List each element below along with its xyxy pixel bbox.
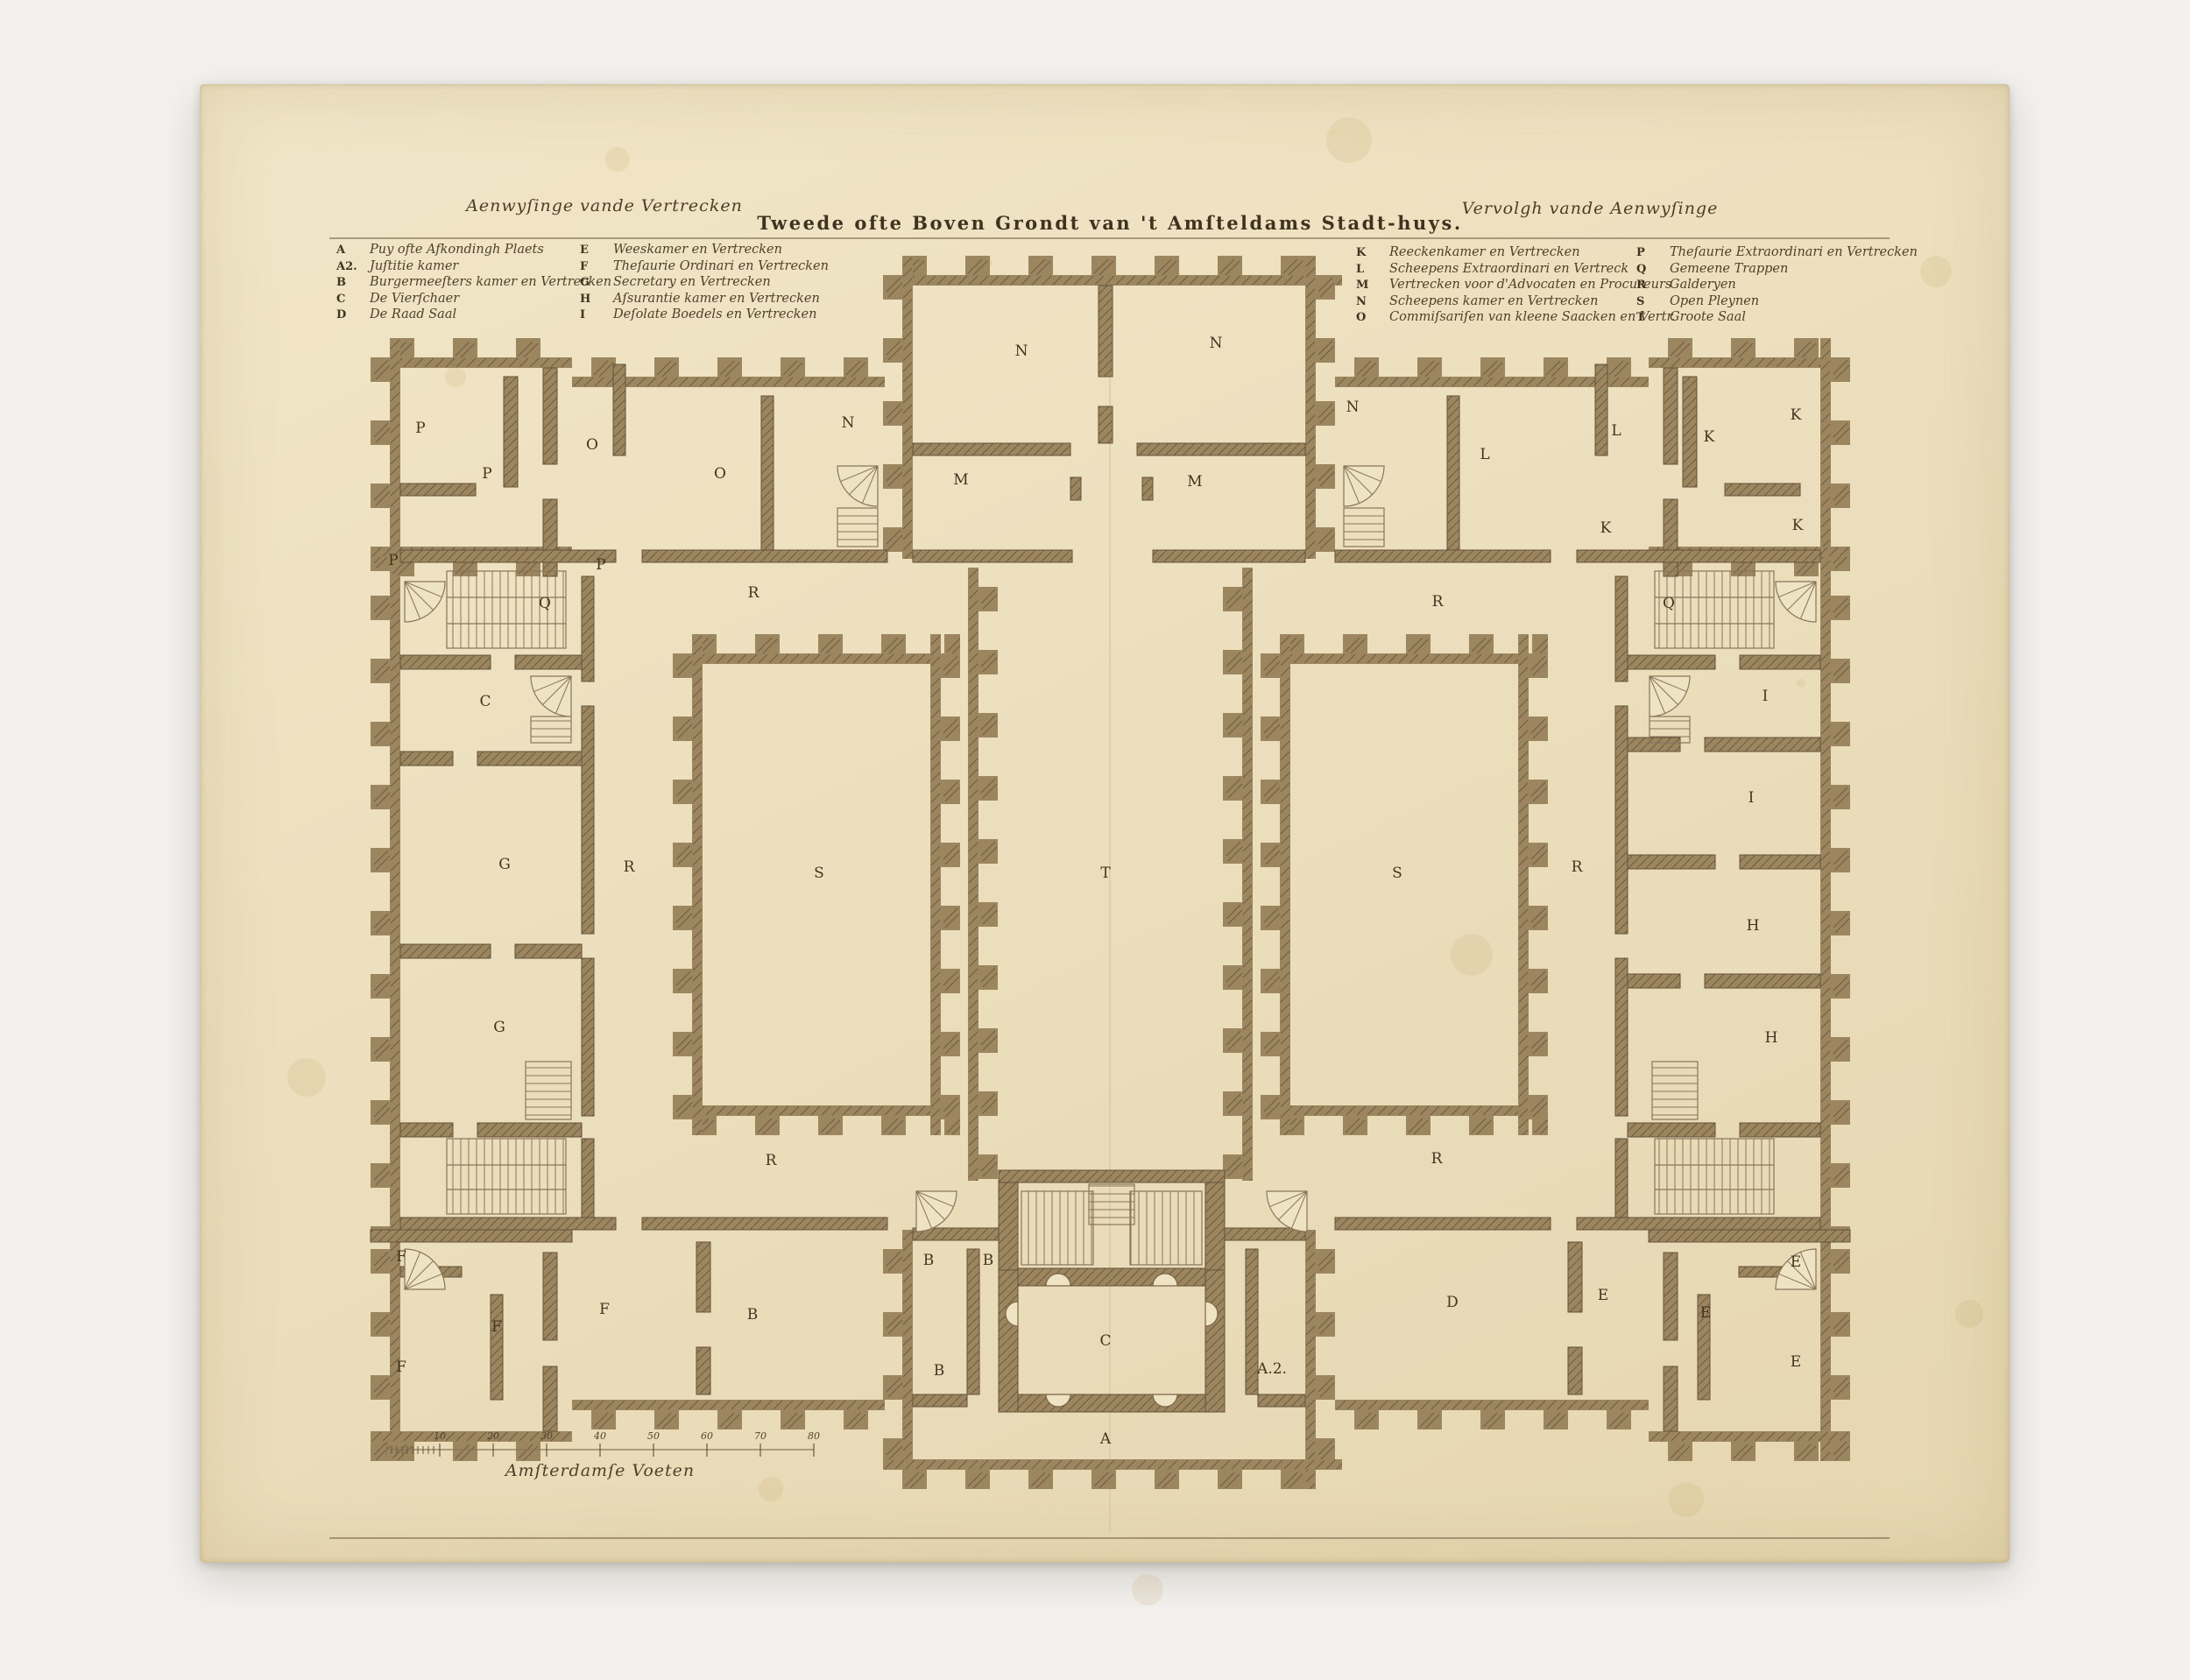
room-label-Q: Q — [539, 595, 551, 612]
legend-text: Secretary en Vertrecken — [613, 275, 771, 289]
room-label-R: R — [1431, 1150, 1444, 1168]
door-arches — [1006, 1274, 1218, 1407]
room-label-A: A — [1099, 1430, 1112, 1448]
room-label-K: K — [1704, 428, 1715, 446]
legend-key: P — [1636, 246, 1670, 259]
legend-text: Theſaurie Ordinari en Vertrecken — [613, 259, 829, 273]
room-label-O: O — [586, 436, 598, 454]
legend-key: E — [580, 244, 613, 257]
legend-row: HAſsurantie kamer en Vertrecken — [580, 292, 829, 308]
legend-text: Reeckenkamer en Vertrecken — [1389, 245, 1580, 259]
legend-key: F — [580, 260, 613, 273]
scale-tick-label: 80 — [808, 1430, 820, 1442]
engraving-page: 1020304050607080 PPPPOONNNNMMLLKKKKQQRRR… — [0, 0, 2190, 1680]
legend-row: BBurgermeeſters kamer en Vertrecken — [336, 275, 611, 292]
legend-key: A — [336, 244, 370, 257]
legend-row: QGemeene Trappen — [1636, 262, 1918, 279]
scale-caption: Amſterdamſe Voeten — [505, 1461, 695, 1480]
room-label-R: R — [766, 1152, 778, 1169]
room-label-P: P — [482, 465, 491, 483]
legend-row: APuy ofte Afkondingh Plaets — [336, 243, 611, 259]
scale-tick-label: 60 — [701, 1430, 713, 1442]
legend-row: RGalderyen — [1636, 278, 1918, 294]
room-label-E: E — [1700, 1304, 1711, 1322]
scale-tick-label: 30 — [540, 1430, 553, 1442]
room-label-M: M — [953, 471, 968, 489]
room-label-E: E — [1791, 1253, 1801, 1271]
room-label-R: R — [1432, 593, 1445, 611]
room-label-T: T — [1100, 865, 1111, 882]
room-label-N: N — [1015, 342, 1028, 360]
room-label-B: B — [934, 1362, 945, 1380]
legend-left-heading: Aenwyſinge vande Vertrecken — [466, 196, 743, 215]
legend-key: N — [1356, 295, 1389, 308]
legend-row: GSecretary en Vertrecken — [580, 275, 829, 292]
room-label-C: C — [1099, 1332, 1111, 1350]
room-label-M: M — [1187, 473, 1202, 491]
legend-row: CDe Vierſchaer — [336, 292, 611, 308]
legend-key: T — [1636, 311, 1670, 324]
legend-row: EWeeskamer en Vertrecken — [580, 243, 829, 259]
legend-text: Vertrecken voor d'Advocaten en Procureur… — [1389, 278, 1671, 292]
legend-text: Burgermeeſters kamer en Vertrecken — [370, 275, 611, 289]
legend-row: TGroote Saal — [1636, 310, 1918, 327]
legend-text: De Raad Saal — [370, 307, 456, 321]
legend-text: Deſolate Boedels en Vertrecken — [613, 307, 816, 321]
room-label-F: F — [599, 1301, 610, 1318]
legend-right-col2: PTheſaurie Extraordinari en Vertrecken Q… — [1636, 245, 1918, 327]
room-label-B: B — [747, 1306, 759, 1324]
room-label-B: B — [923, 1252, 935, 1269]
legend-text: Scheepens kamer en Vertrecken — [1389, 294, 1598, 308]
room-label-R: R — [748, 584, 760, 602]
room-label-G: G — [493, 1019, 505, 1036]
room-label-N: N — [1346, 399, 1360, 416]
plate-title: Tweede ofte Boven Grondt van 't Amſtelda… — [757, 212, 1462, 234]
legend-key: R — [1636, 279, 1670, 292]
room-label-P: P — [415, 420, 425, 437]
room-label-P: P — [596, 556, 605, 574]
legend-row: IDeſolate Boedels en Vertrecken — [580, 307, 829, 324]
room-label-P: P — [388, 552, 398, 569]
legend-row: MVertrecken voor d'Advocaten en Procureu… — [1356, 278, 1675, 294]
scale-tick-label: 70 — [754, 1430, 766, 1442]
scale-tick-label: 10 — [434, 1430, 446, 1442]
room-label-I: I — [1748, 789, 1755, 807]
legend-text: Theſaurie Extraordinari en Vertrecken — [1670, 245, 1918, 259]
legend-right-heading: Vervolgh vande Aenwyſinge — [1462, 199, 1719, 218]
legend-key: K — [1356, 246, 1389, 259]
legend-text: Puy ofte Afkondingh Plaets — [370, 243, 544, 257]
legend-key: L — [1356, 263, 1389, 276]
legend-text: Commiſsariſen van kleene Saacken en Vert… — [1389, 310, 1675, 324]
room-label-K: K — [1791, 406, 1802, 424]
legend-row: FTheſaurie Ordinari en Vertrecken — [580, 259, 829, 276]
legend-text: Gemeene Trappen — [1670, 262, 1788, 276]
legend-key: D — [336, 308, 370, 321]
room-label-S: S — [814, 865, 824, 882]
legend-text: Open Pleynen — [1670, 294, 1759, 308]
room-label-N: N — [842, 414, 855, 432]
legend-row: NScheepens kamer en Vertrecken — [1356, 294, 1675, 311]
room-label-B: B — [983, 1252, 994, 1269]
legend-key: H — [580, 293, 613, 306]
room-label-F: F — [396, 1359, 406, 1376]
legend-right-col1: KReeckenkamer en Vertrecken LScheepens E… — [1356, 245, 1675, 327]
legend-row: KReeckenkamer en Vertrecken — [1356, 245, 1675, 262]
legend-row: SOpen Pleynen — [1636, 294, 1918, 311]
legend-key: O — [1356, 311, 1389, 324]
legend-text: Groote Saal — [1670, 310, 1746, 324]
room-label-H: H — [1747, 917, 1760, 935]
room-label-H: H — [1765, 1029, 1778, 1047]
scale-tick-label: 20 — [486, 1430, 499, 1442]
room-label-O: O — [714, 465, 726, 483]
room-label-R: R — [1572, 858, 1584, 876]
scale-tick-label: 40 — [593, 1430, 606, 1442]
room-label-Q: Q — [1663, 595, 1675, 612]
legend-key: I — [580, 308, 613, 321]
legend-row: DDe Raad Saal — [336, 307, 611, 324]
legend-text: Weeskamer en Vertrecken — [613, 243, 782, 257]
room-label-G: G — [498, 856, 511, 873]
room-label-C: C — [479, 693, 491, 710]
room-label-R: R — [624, 858, 636, 876]
room-label-K: K — [1600, 519, 1612, 537]
legend-row: PTheſaurie Extraordinari en Vertrecken — [1636, 245, 1918, 262]
legend-text: Juſtitie kamer — [370, 259, 458, 273]
room-label-A.2.: A.2. — [1256, 1360, 1287, 1378]
room-label-L: L — [1480, 446, 1489, 463]
room-label-E: E — [1791, 1353, 1801, 1371]
room-label-L: L — [1611, 422, 1621, 440]
legend-key: A2. — [336, 260, 370, 273]
legend-row: A2.Juſtitie kamer — [336, 259, 611, 276]
legend-text: Scheepens Extraordinari en Vertreck — [1389, 262, 1628, 276]
legend-left-col1: APuy ofte Afkondingh Plaets A2.Juſtitie … — [336, 243, 611, 324]
legend-key: M — [1356, 279, 1389, 292]
legend-text: Galderyen — [1670, 278, 1736, 292]
room-label-F: F — [491, 1318, 502, 1336]
legend-left-col2: EWeeskamer en Vertrecken FTheſaurie Ordi… — [580, 243, 829, 324]
legend-key: C — [336, 293, 370, 306]
legend-key: G — [580, 276, 613, 289]
room-label-D: D — [1446, 1294, 1459, 1311]
legend-key: Q — [1636, 263, 1670, 276]
legend-text: Aſsurantie kamer en Vertrecken — [613, 292, 820, 306]
legend-key: S — [1636, 295, 1670, 308]
room-label-S: S — [1392, 865, 1402, 882]
legend-text: De Vierſchaer — [370, 292, 459, 306]
legend-key: B — [336, 276, 370, 289]
room-label-K: K — [1792, 517, 1804, 534]
legend-row: LScheepens Extraordinari en Vertreck — [1356, 262, 1675, 279]
room-label-E: E — [1598, 1287, 1608, 1304]
legend-row: OCommiſsariſen van kleene Saacken en Ver… — [1356, 310, 1675, 327]
room-label-N: N — [1210, 335, 1223, 352]
room-label-I: I — [1763, 688, 1769, 705]
scale-tick-label: 50 — [647, 1430, 660, 1442]
room-label-F: F — [396, 1248, 406, 1266]
